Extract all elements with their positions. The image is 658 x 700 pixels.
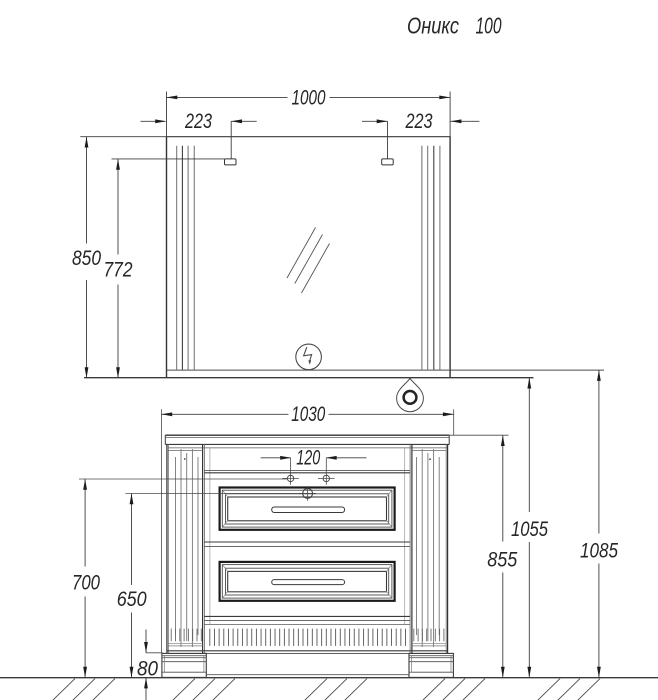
svg-text:850: 850 (72, 247, 101, 270)
svg-text:Оникс: Оникс (407, 13, 459, 39)
svg-text:650: 650 (117, 588, 147, 611)
svg-text:120: 120 (296, 447, 320, 470)
svg-text:700: 700 (72, 571, 100, 594)
svg-text:1085: 1085 (580, 540, 618, 563)
svg-text:1000: 1000 (292, 86, 326, 109)
svg-text:855: 855 (487, 548, 517, 571)
svg-text:100: 100 (476, 13, 502, 39)
svg-text:772: 772 (104, 259, 133, 282)
svg-text:1030: 1030 (291, 403, 325, 426)
svg-text:223: 223 (184, 110, 212, 133)
svg-text:80: 80 (137, 657, 158, 680)
svg-text:1055: 1055 (511, 518, 548, 541)
svg-text:223: 223 (405, 110, 433, 133)
